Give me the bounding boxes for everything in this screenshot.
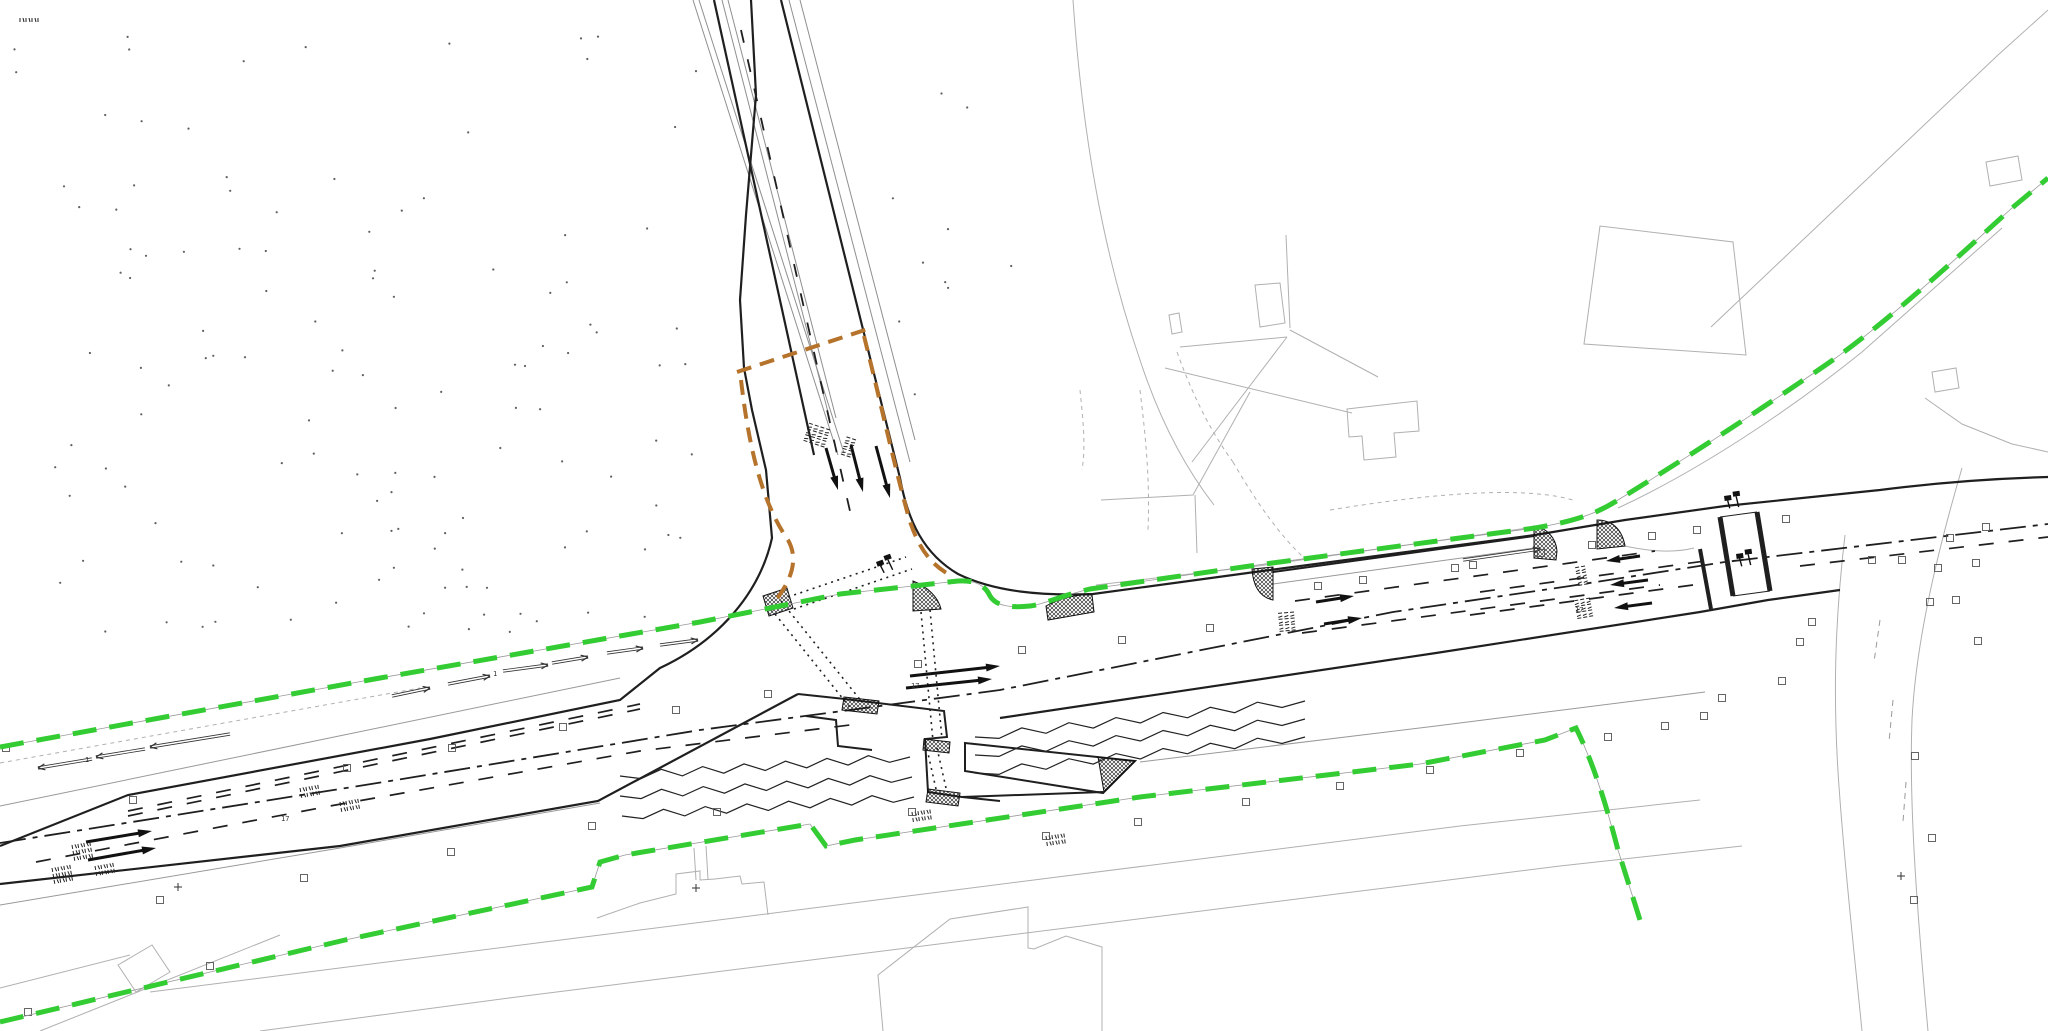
annotation-block bbox=[340, 799, 359, 812]
traffic-signal-icon bbox=[875, 554, 896, 575]
side-road-dashes bbox=[1874, 620, 1906, 822]
stop-line bbox=[1700, 549, 1711, 609]
annotation-block bbox=[1278, 612, 1296, 631]
annotation-block bbox=[1575, 566, 1588, 585]
dimension-label: 17 bbox=[281, 815, 289, 823]
annotation-block bbox=[72, 842, 93, 861]
road-gray-lines bbox=[0, 548, 1705, 905]
survey-squares bbox=[3, 516, 1990, 1016]
annotation-block bbox=[52, 865, 73, 884]
verge-zigzag-lines bbox=[620, 701, 1305, 819]
dimension-label: 1 bbox=[493, 670, 497, 678]
dimension-label: 17 bbox=[1575, 606, 1583, 614]
dimension-leaders bbox=[38, 547, 1540, 770]
traffic-signal-icon bbox=[1736, 549, 1754, 567]
vegetation-dots bbox=[13, 36, 1012, 634]
parcel-dashed-lines bbox=[0, 352, 1576, 763]
cad-viewport: 17171711 bbox=[0, 0, 2048, 1031]
traffic-signal-symbols bbox=[875, 491, 1754, 574]
site-boundary-green-underlay bbox=[0, 178, 2048, 1022]
road-kerbs-black bbox=[0, 0, 2048, 884]
tactile-hatches bbox=[763, 520, 1625, 806]
dimension-labels: 17171711 bbox=[85, 606, 1583, 823]
works-boundary-orange bbox=[737, 329, 952, 600]
north-road-gray-lines bbox=[693, 0, 915, 462]
annotation-block bbox=[20, 18, 38, 22]
dimension-label: 1 bbox=[85, 756, 89, 764]
dimension-label: 17 bbox=[911, 682, 919, 690]
drawing-layers: 17171711 bbox=[0, 0, 2048, 1031]
pedestrian-crossing-bars bbox=[1720, 512, 1770, 596]
site-boundary-green bbox=[0, 178, 2048, 1022]
annotation-tick-blocks bbox=[20, 18, 1593, 884]
plan-canvas[interactable]: 17171711 bbox=[0, 0, 2048, 1031]
annotation-block bbox=[300, 785, 319, 798]
north-road-centerline bbox=[741, 30, 852, 520]
survey-crosses bbox=[174, 872, 1905, 892]
